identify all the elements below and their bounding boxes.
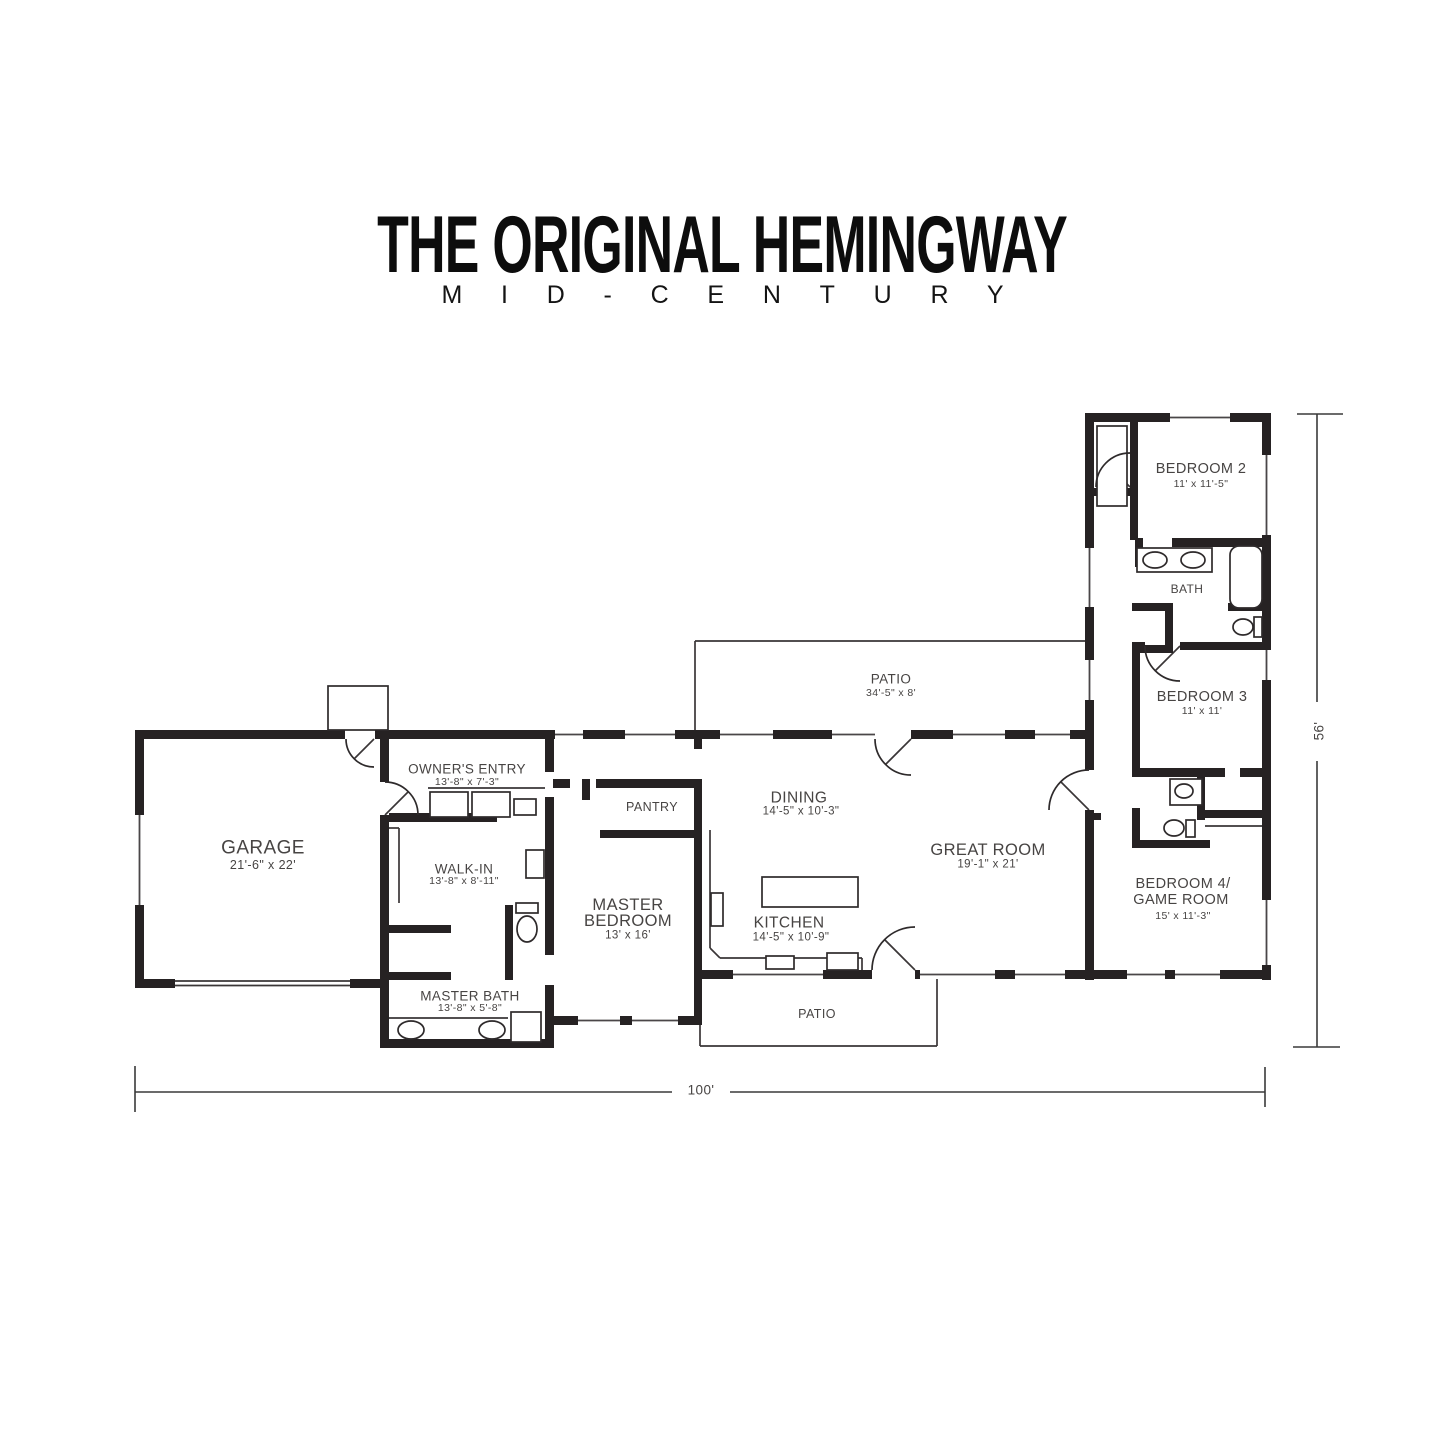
- room-label-master-bedroom-2: BEDROOM: [584, 913, 672, 930]
- room-dims-walk-in: 13'-8" x 8'-11": [429, 876, 499, 887]
- room-dims-patio-rear: 34'-5" x 8': [866, 688, 916, 699]
- room-dims-bedroom-3: 11' x 11': [1182, 706, 1223, 717]
- floor-plan-page: THE ORIGINAL HEMINGWAY MID-CENTURY GARAG…: [0, 0, 1445, 1445]
- dimension-lines-layer: [135, 414, 1343, 1112]
- dimension-label-depth: 56': [1312, 722, 1326, 741]
- windows-layer: [140, 418, 1267, 1021]
- room-label-bedroom-4-1: BEDROOM 4/: [1135, 877, 1230, 892]
- walls-layer: [135, 413, 1271, 1048]
- room-label-bath: BATH: [1171, 583, 1204, 595]
- room-label-owners-entry: OWNER'S ENTRY: [408, 762, 526, 776]
- room-dims-master-bath: 13'-8" x 5'-8": [438, 1003, 502, 1014]
- room-label-bedroom-2: BEDROOM 2: [1156, 462, 1247, 477]
- thin-lines-layer: [175, 463, 1262, 1046]
- room-dims-kitchen: 14'-5" x 10'-9": [753, 932, 830, 944]
- room-dims-dining: 14'-5" x 10'-3": [763, 806, 840, 818]
- floor-plan-drawing: [0, 0, 1445, 1445]
- room-label-walk-in: WALK-IN: [435, 862, 494, 876]
- room-label-bedroom-3: BEDROOM 3: [1157, 690, 1248, 705]
- room-label-pantry: PANTRY: [626, 801, 678, 814]
- room-label-master-bath: MASTER BATH: [420, 989, 519, 1003]
- room-dims-owners-entry: 13'-8" x 7'-3": [435, 777, 499, 788]
- dimension-label-width: 100': [688, 1083, 715, 1097]
- room-dims-great-room: 19'-1" x 21': [957, 859, 1018, 871]
- room-label-bedroom-4-2: GAME ROOM: [1133, 893, 1228, 908]
- room-dims-bedroom-2: 11' x 11'-5": [1174, 479, 1229, 490]
- room-label-great-room: GREAT ROOM: [930, 842, 1045, 859]
- room-label-kitchen: KITCHEN: [754, 915, 825, 931]
- room-dims-master-bedroom: 13' x 16': [605, 930, 651, 942]
- room-label-patio-rear: PATIO: [871, 672, 912, 686]
- room-label-patio-front: PATIO: [798, 1008, 836, 1021]
- room-dims-bedroom-4: 15' x 11'-3": [1155, 911, 1211, 922]
- room-label-dining: DINING: [771, 790, 828, 806]
- room-label-garage: GARAGE: [221, 839, 305, 858]
- room-dims-garage: 21'-6" x 22': [230, 859, 296, 872]
